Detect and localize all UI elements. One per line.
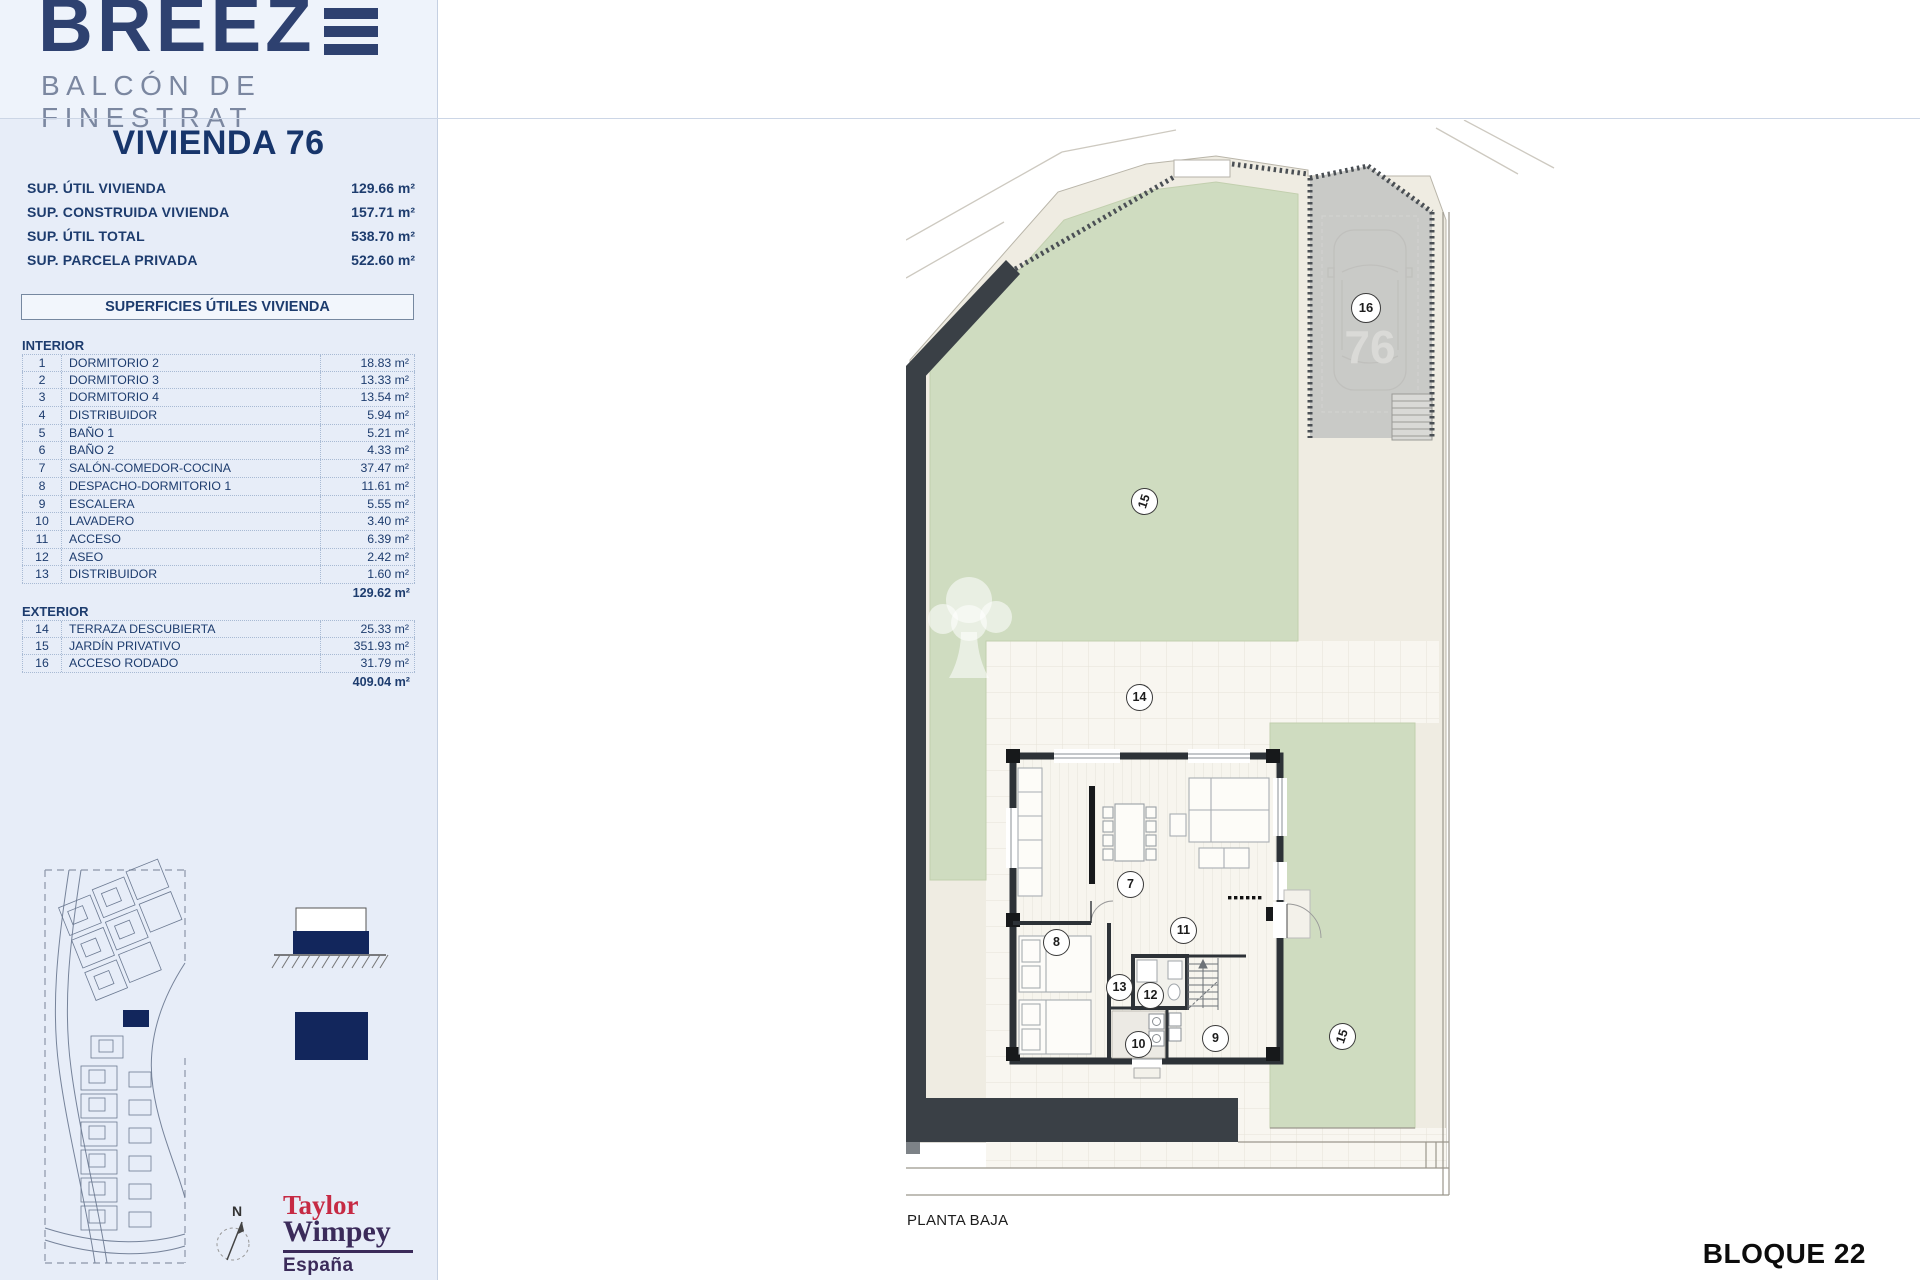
table-row: 13DISTRIBUIDOR1.60 m² [22, 566, 415, 584]
rear-step [1134, 1068, 1160, 1078]
developer-logo-region: España [283, 1256, 413, 1275]
plan-marker-9: 9 [1202, 1025, 1229, 1052]
sidebar: BREEZ BALCÓN DE FINESTRAT VIVIENDA 76 SU… [0, 0, 438, 1280]
row-name: DORMITORIO 2 [62, 355, 320, 371]
row-num: 1 [22, 355, 62, 371]
row-value: 37.47 m² [320, 460, 415, 477]
legend-plan-icon [295, 1012, 368, 1060]
triple-bar-e-icon [324, 8, 378, 55]
header-divider [0, 118, 1920, 119]
north-arrow-icon: N [205, 1200, 265, 1276]
row-value: 1.60 m² [320, 566, 415, 583]
row-value: 13.54 m² [320, 389, 415, 406]
summary-label: SUP. ÚTIL TOTAL [27, 224, 145, 248]
summary-value: 522.60 m² [351, 248, 415, 272]
table-row: 4DISTRIBUIDOR5.94 m² [22, 407, 415, 425]
plan-marker-14: 14 [1126, 684, 1153, 711]
page-title: VIVIENDA 76 [0, 124, 437, 163]
row-name: DORMITORIO 3 [62, 372, 320, 389]
summary-value: 538.70 m² [351, 224, 415, 248]
row-value: 351.93 m² [320, 638, 415, 655]
interior-table: 1DORMITORIO 218.83 m² 2DORMITORIO 313.33… [22, 354, 415, 603]
row-value: 31.79 m² [320, 655, 415, 672]
table-row: 7SALÓN-COMEDOR-COCINA37.47 m² [22, 460, 415, 478]
row-name: DESPACHO-DORMITORIO 1 [62, 478, 320, 495]
row-name: TERRAZA DESCUBIERTA [62, 621, 320, 637]
row-value: 3.40 m² [320, 513, 415, 530]
row-value: 11.61 m² [320, 478, 415, 495]
plan-marker-10: 10 [1125, 1031, 1152, 1058]
plot-number: 76 [1344, 321, 1395, 373]
summary-value: 157.71 m² [351, 200, 415, 224]
terrace-paving [986, 641, 1439, 723]
developer-logo-line2: Wimpey [283, 1217, 413, 1247]
section-label-exterior: EXTERIOR [22, 604, 88, 619]
row-num: 4 [22, 407, 62, 424]
interior-subtotal: 129.62 m² [22, 584, 415, 603]
developer-logo-rule [283, 1250, 413, 1253]
site-plan-map [35, 758, 207, 1278]
table-row: 16ACCESO RODADO31.79 m² [22, 655, 415, 673]
row-num: 15 [22, 638, 62, 655]
row-num: 2 [22, 372, 62, 389]
row-num: 7 [22, 460, 62, 477]
row-name: BAÑO 2 [62, 442, 320, 459]
block-label: BLOQUE 22 [1703, 1238, 1866, 1270]
row-name: DISTRIBUIDOR [62, 407, 320, 424]
brand-wordmark: BREEZ [38, 0, 378, 69]
brand-wordmark-text: BREEZ [38, 0, 316, 69]
table-header: SUPERFICIES ÚTILES VIVIENDA [21, 294, 414, 320]
summary-row: SUP. PARCELA PRIVADA 522.60 m² [27, 248, 415, 272]
table-row: 9ESCALERA5.55 m² [22, 496, 415, 514]
row-num: 13 [22, 566, 62, 583]
plan-marker-13: 13 [1106, 974, 1133, 1001]
row-name: LAVADERO [62, 513, 320, 530]
table-row: 1DORMITORIO 218.83 m² [22, 354, 415, 372]
summary-row: SUP. CONSTRUIDA VIVIENDA 157.71 m² [27, 200, 415, 224]
row-value: 2.42 m² [320, 549, 415, 566]
row-name: ACCESO RODADO [62, 655, 320, 672]
plan-sheet: BREEZ BALCÓN DE FINESTRAT VIVIENDA 76 SU… [0, 0, 1920, 1280]
row-value: 13.33 m² [320, 372, 415, 389]
house [1006, 749, 1321, 1078]
row-num: 11 [22, 531, 62, 548]
row-name: JARDÍN PRIVATIVO [62, 638, 320, 655]
row-name: DISTRIBUIDOR [62, 566, 320, 583]
developer-logo: Taylor Wimpey España [283, 1192, 413, 1275]
table-row: 10LAVADERO3.40 m² [22, 513, 415, 531]
row-num: 5 [22, 425, 62, 442]
row-num: 10 [22, 513, 62, 530]
table-row: 2DORMITORIO 313.33 m² [22, 372, 415, 390]
summary-value: 129.66 m² [351, 176, 415, 200]
summary-row: SUP. ÚTIL VIVIENDA 129.66 m² [27, 176, 415, 200]
legend-section-icon [270, 898, 390, 976]
summary-label: SUP. CONSTRUIDA VIVIENDA [27, 200, 229, 224]
north-label: N [232, 1203, 242, 1219]
surface-summary: SUP. ÚTIL VIVIENDA 129.66 m² SUP. CONSTR… [27, 176, 415, 272]
brand-logo: BREEZ BALCÓN DE FINESTRAT [0, 0, 437, 119]
plan-marker-8: 8 [1043, 929, 1070, 956]
row-value: 5.94 m² [320, 407, 415, 424]
floor-plan-area: 76 [906, 120, 1886, 1210]
kitchen [1018, 768, 1042, 896]
table-row: 3DORMITORIO 413.54 m² [22, 389, 415, 407]
row-num: 16 [22, 655, 62, 672]
table-row: 6BAÑO 24.33 m² [22, 442, 415, 460]
row-num: 12 [22, 549, 62, 566]
row-num: 3 [22, 389, 62, 406]
table-row: 12ASEO2.42 m² [22, 549, 415, 567]
floor-label: PLANTA BAJA [907, 1212, 1008, 1229]
plan-marker-11: 11 [1170, 917, 1197, 944]
exterior-stairs [1392, 394, 1432, 440]
plan-marker-7: 7 [1117, 871, 1144, 898]
row-num: 14 [22, 621, 62, 637]
row-num: 8 [22, 478, 62, 495]
table-row: 14TERRAZA DESCUBIERTA25.33 m² [22, 620, 415, 638]
row-value: 5.21 m² [320, 425, 415, 442]
table-row: 15JARDÍN PRIVATIVO351.93 m² [22, 638, 415, 656]
summary-label: SUP. ÚTIL VIVIENDA [27, 176, 166, 200]
summary-label: SUP. PARCELA PRIVADA [27, 248, 198, 272]
row-name: DORMITORIO 4 [62, 389, 320, 406]
section-label-interior: INTERIOR [22, 338, 84, 353]
row-name: ASEO [62, 549, 320, 566]
gate [1174, 160, 1230, 177]
summary-row: SUP. ÚTIL TOTAL 538.70 m² [27, 224, 415, 248]
row-value: 6.39 m² [320, 531, 415, 548]
table-row: 5BAÑO 15.21 m² [22, 425, 415, 443]
table-row: 11ACCESO6.39 m² [22, 531, 415, 549]
row-value: 18.83 m² [320, 355, 415, 371]
row-num: 9 [22, 496, 62, 513]
row-name: ACCESO [62, 531, 320, 548]
row-value: 5.55 m² [320, 496, 415, 513]
table-row: 8DESPACHO-DORMITORIO 111.61 m² [22, 478, 415, 496]
highlighted-plot [123, 1010, 149, 1027]
row-name: ESCALERA [62, 496, 320, 513]
floor-plan-drawing: 76 [906, 120, 1886, 1210]
dining-set [1103, 804, 1156, 861]
exterior-table: 14TERRAZA DESCUBIERTA25.33 m² 15JARDÍN P… [22, 620, 415, 692]
kitchen-island [1089, 786, 1095, 884]
row-name: SALÓN-COMEDOR-COCINA [62, 460, 320, 477]
row-num: 6 [22, 442, 62, 459]
row-value: 4.33 m² [320, 442, 415, 459]
plan-marker-16: 16 [1351, 293, 1381, 323]
plan-marker-12: 12 [1137, 982, 1164, 1009]
row-value: 25.33 m² [320, 621, 415, 637]
row-name: BAÑO 1 [62, 425, 320, 442]
exterior-subtotal: 409.04 m² [22, 673, 415, 692]
